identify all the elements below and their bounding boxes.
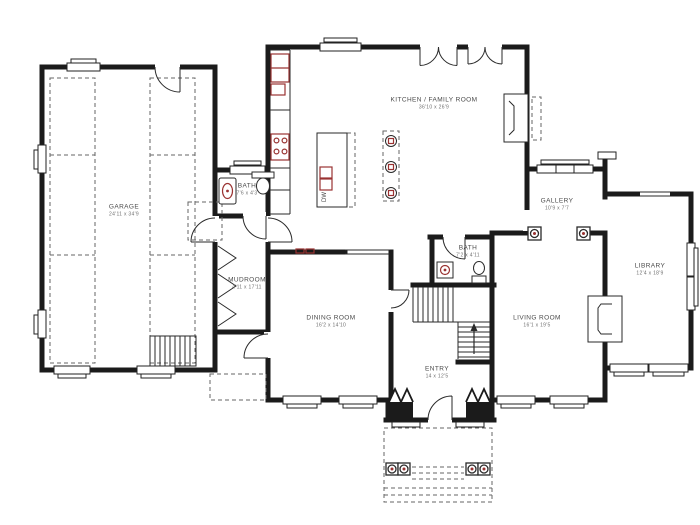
room-label-living: LIVING ROOM 16'1 x 19'5 [513, 315, 561, 330]
room-name: KITCHEN / FAMILY ROOM [391, 97, 478, 105]
floor-plan-drawing: DW [0, 0, 700, 525]
room-dims: 14 x 12'5 [425, 374, 449, 381]
sink-bowl [257, 178, 270, 194]
room-name: BATH [456, 245, 480, 253]
room-name: LIVING ROOM [513, 315, 561, 323]
room-name: MUDROOM [228, 277, 266, 285]
room-label-bath-garage: BATH 7'6 x 4'3 [236, 183, 257, 198]
bath-main-fixtures [437, 262, 486, 284]
ceiling-pendant-circles [386, 136, 397, 199]
room-dims: 24'11 x 34'9 [109, 212, 139, 219]
kitchen-counter [270, 50, 290, 214]
room-dims: 10'9 x 7'7 [541, 206, 574, 213]
room-label-gallery: GALLERY 10'9 x 7'7 [541, 198, 574, 213]
room-name: GALLERY [541, 198, 574, 206]
gallery-columns [528, 227, 590, 240]
cooktop [271, 134, 289, 160]
room-label-kitchen: KITCHEN / FAMILY ROOM 36'10 x 26'9 [391, 97, 478, 112]
room-dims: 16'1 x 19'5 [513, 323, 561, 330]
porch-columns [386, 463, 490, 475]
room-label-mudroom: MUDROOM 4'11 x 17'11 [228, 277, 266, 292]
room-dims: 12'4 x 18'9 [635, 271, 666, 278]
sink-bowl [474, 262, 485, 275]
sink-pedestal [472, 276, 486, 283]
kitchen-appliance [271, 84, 285, 95]
dishwasher-label: DW [322, 192, 328, 202]
garage-parking-bays [50, 78, 195, 363]
room-name: GARAGE [109, 204, 139, 212]
fireplace-library [588, 296, 622, 342]
fireplace-family-room [504, 94, 528, 142]
room-dims: 36'10 x 26'9 [391, 105, 478, 112]
room-dims: 16'2 x 14'10 [306, 323, 355, 330]
dashed-closet-and-overhangs [188, 97, 541, 400]
room-name: DINING ROOM [306, 315, 355, 323]
room-label-library: LIBRARY 12'4 x 18'9 [635, 263, 666, 278]
room-dims: 7'6 x 4'3 [236, 191, 257, 198]
room-name: BATH [236, 183, 257, 191]
room-label-garage: GARAGE 24'11 x 34'9 [109, 204, 139, 219]
room-dims: 7'2 x 4'11 [456, 253, 480, 260]
room-label-entry: ENTRY 14 x 12'5 [425, 366, 449, 381]
entry-pilasters [389, 389, 490, 420]
exterior-and-interior-walls [42, 47, 691, 420]
room-name: ENTRY [425, 366, 449, 374]
garage-steps [150, 336, 196, 366]
sink-counter [252, 172, 274, 178]
room-label-bath-main: BATH 7'2 x 4'11 [456, 245, 480, 260]
room-dims: 4'11 x 17'11 [228, 285, 266, 292]
floor-plan-canvas: DW GARAGE 24'11 x 34'9 BATH 7'6 x 4'3 KI… [0, 0, 700, 525]
room-label-dining: DINING ROOM 16'2 x 14'10 [306, 315, 355, 330]
staircase [413, 287, 490, 359]
room-name: LIBRARY [635, 263, 666, 271]
